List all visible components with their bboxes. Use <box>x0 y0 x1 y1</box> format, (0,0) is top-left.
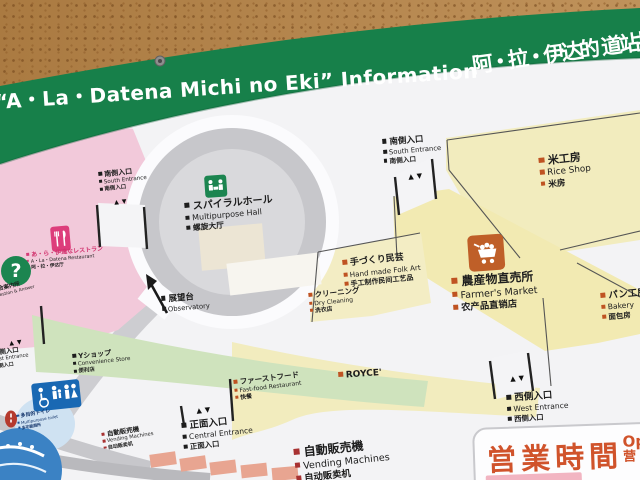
west-arrows: ▲▼ <box>510 374 527 383</box>
label-dry-cleaning: クリーニング Dry Cleaning 洗衣店 <box>308 286 362 316</box>
corridor-south-left <box>98 203 147 248</box>
label-rice-shop: 米工房 Rice Shop 米房 <box>538 150 593 192</box>
hours-title-cn-partial: 营 <box>623 450 640 464</box>
label-bakery: パン工房 Bakery 面包房 <box>600 287 640 323</box>
label-west-entrance: 西側入口 West Entrance 西侧入口 <box>506 389 570 425</box>
label-observatory: 展望台 Observatory <box>161 291 210 315</box>
label-farmers-market: 農産物直売所 Farmer's Market 农产品直销店 <box>451 269 539 315</box>
bullet <box>184 203 190 209</box>
farmers-market-icon <box>467 233 505 271</box>
hours-panel: 営業時間 Op 营 <box>472 421 640 480</box>
sign-photo: “A・La・Datena Michi no Eki” Information 阿… <box>0 0 640 480</box>
hours-title-side: Op 营 <box>622 434 640 464</box>
label-south-entrance-right: 南側入口 South Entrance 南侧入口 <box>382 133 442 166</box>
label-south-entrance-left: 南側入口 South Entrance 南侧入口 <box>98 166 148 194</box>
meeting-hall-icon <box>204 174 227 197</box>
south-left-arrows: ▲▼ <box>114 198 130 206</box>
south-right-arrows: ▲▼ <box>408 172 425 181</box>
screw <box>155 56 165 66</box>
hours-title-en-partial: Op <box>622 434 640 451</box>
